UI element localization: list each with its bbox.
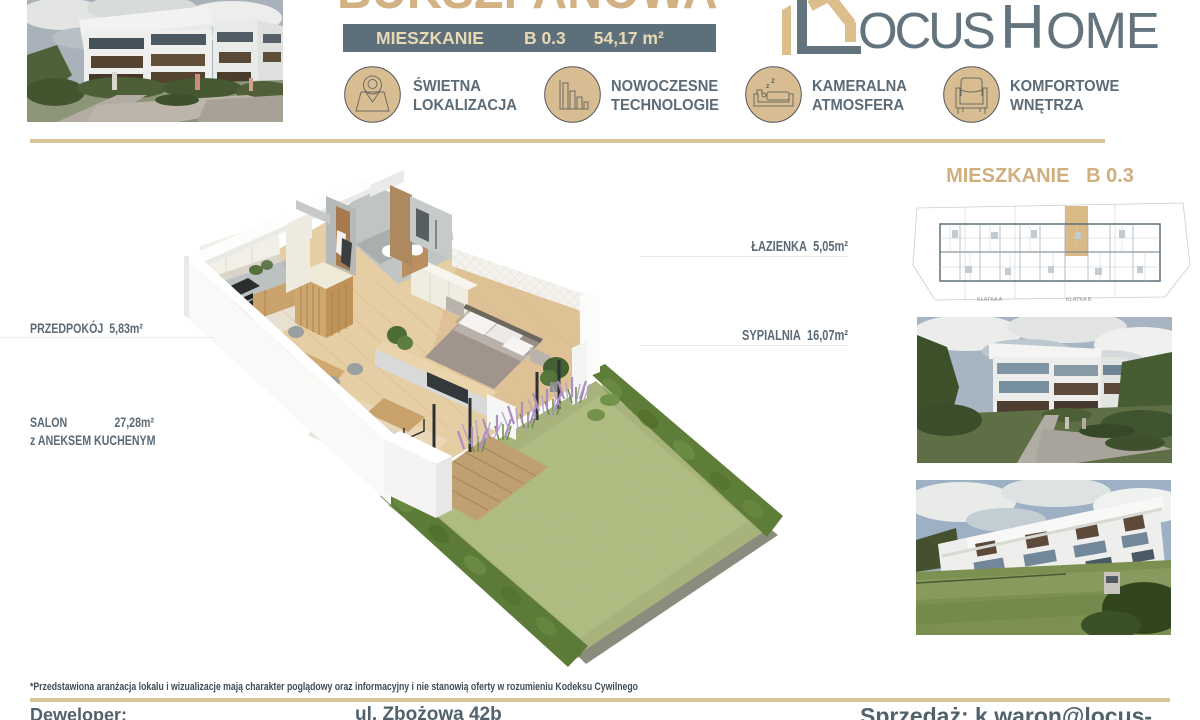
- svg-text:KLATKA A: KLATKA A: [977, 297, 1003, 303]
- svg-text:KLATKA B: KLATKA B: [1066, 297, 1092, 303]
